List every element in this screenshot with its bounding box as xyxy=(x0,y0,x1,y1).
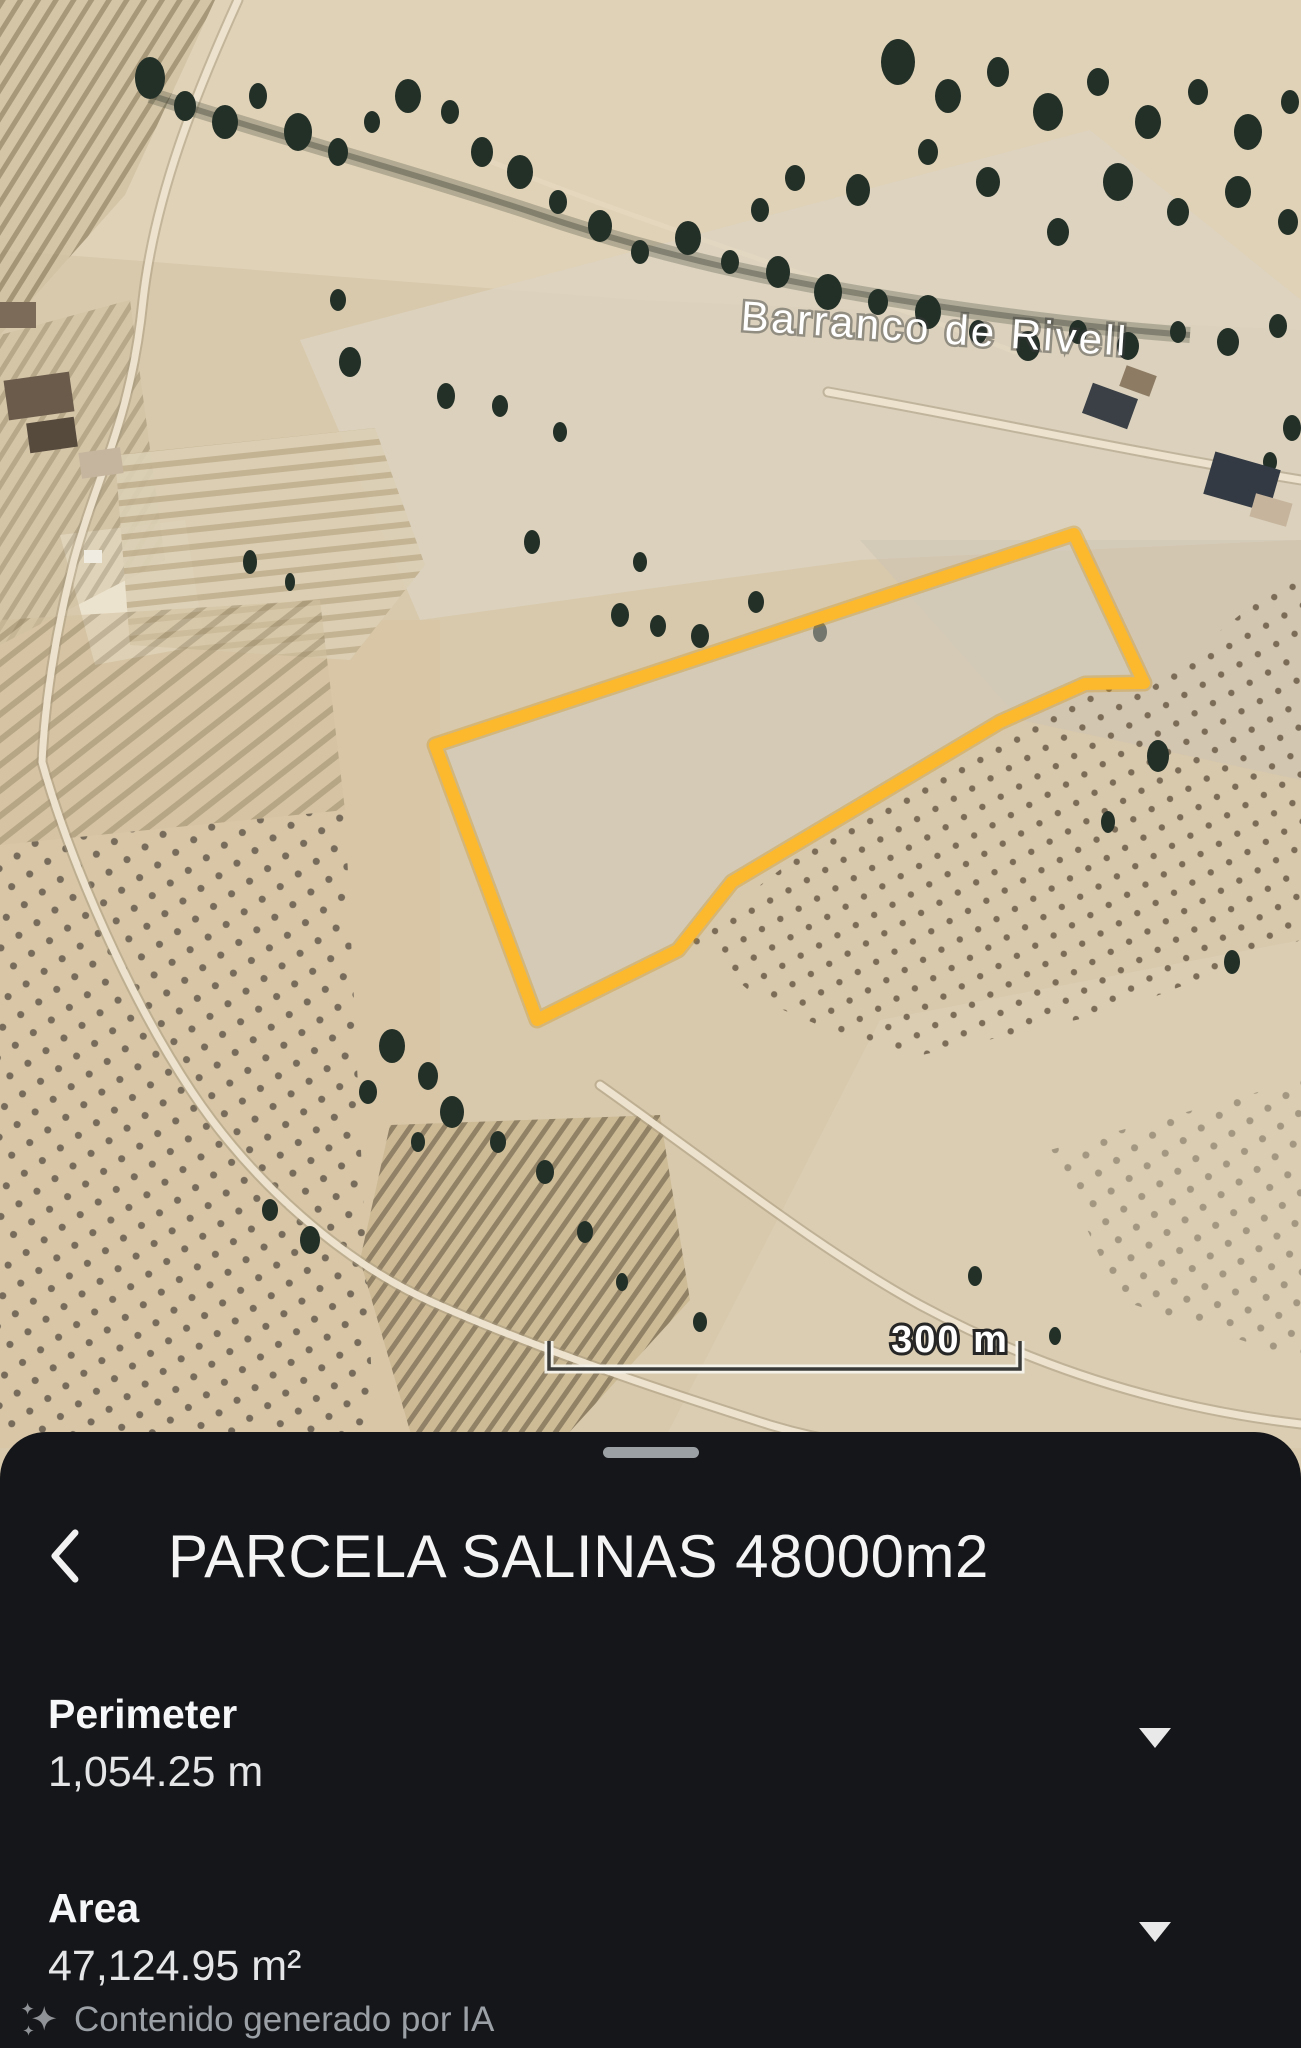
perimeter-value: 1,054.25 m xyxy=(48,1746,1201,1798)
ai-generated-notice: Contenido generado por IA xyxy=(74,2000,494,2040)
perimeter-label: Perimeter xyxy=(48,1688,1201,1740)
ai-sparkle-icon xyxy=(18,1999,60,2041)
perimeter-row[interactable]: Perimeter 1,054.25 m xyxy=(48,1686,1201,1798)
chevron-left-icon xyxy=(47,1528,81,1584)
dropdown-arrow-icon[interactable] xyxy=(1139,1728,1171,1748)
ai-footer: Contenido generado por IA xyxy=(18,1996,494,2044)
satellite-map[interactable]: Barranco de Rivell 300 m xyxy=(0,0,1301,1448)
map-container: Barranco de Rivell 300 m xyxy=(0,0,1301,1448)
bottom-sheet: PARCELA SALINAS 48000m2 Perimeter 1,054.… xyxy=(0,1432,1301,2048)
app-screen: Barranco de Rivell 300 m PARCELA SALINAS… xyxy=(0,0,1301,2048)
sheet-header: PARCELA SALINAS 48000m2 xyxy=(0,1520,1301,1592)
back-button[interactable] xyxy=(36,1520,92,1592)
dropdown-arrow-icon[interactable] xyxy=(1139,1922,1171,1942)
sheet-title: PARCELA SALINAS 48000m2 xyxy=(168,1522,989,1591)
area-row[interactable]: Area 47,124.95 m² xyxy=(48,1880,1201,1992)
area-value: 47,124.95 m² xyxy=(48,1940,1201,1992)
area-label: Area xyxy=(48,1882,1201,1934)
sheet-drag-handle[interactable] xyxy=(603,1447,699,1458)
scale-label: 300 m xyxy=(891,1319,1009,1361)
